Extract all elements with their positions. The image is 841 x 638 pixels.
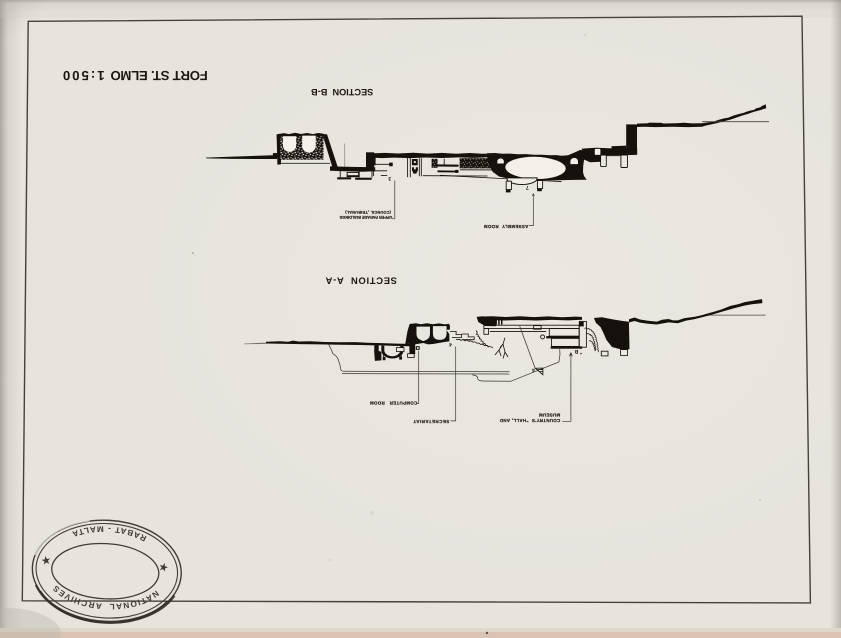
svg-text:SECTION A-A: SECTION A-A <box>325 275 397 286</box>
svg-text:(COUNCIL ,TRIBUNAL): (COUNCIL ,TRIBUNAL) <box>344 210 390 214</box>
svg-text:4: 4 <box>449 341 452 347</box>
svg-text:7: 7 <box>526 184 529 190</box>
svg-text:MUSEUM: MUSEUM <box>539 412 561 417</box>
svg-text:SECTION B-B: SECTION B-B <box>311 87 374 97</box>
svg-text:FORT ST. ELMO: FORT ST. ELMO <box>111 68 208 83</box>
svg-text:B: B <box>574 348 578 354</box>
svg-text:4: 4 <box>532 367 535 373</box>
svg-text:COUNTRY'S "HALL, AND: COUNTRY'S "HALL, AND <box>499 418 560 423</box>
svg-text:COMPUTER ROOM: COMPUTER ROOM <box>370 400 417 405</box>
svg-text:UPPER PARADE BUILDINGS: UPPER PARADE BUILDINGS <box>339 215 392 219</box>
svg-text:ASSEMBLY ROOM: ASSEMBLY ROOM <box>484 224 529 229</box>
svg-text:1:500: 1:500 <box>61 68 105 83</box>
svg-text:3: 3 <box>388 175 391 181</box>
svg-text:SECRETARIAT: SECRETARIAT <box>413 419 449 424</box>
